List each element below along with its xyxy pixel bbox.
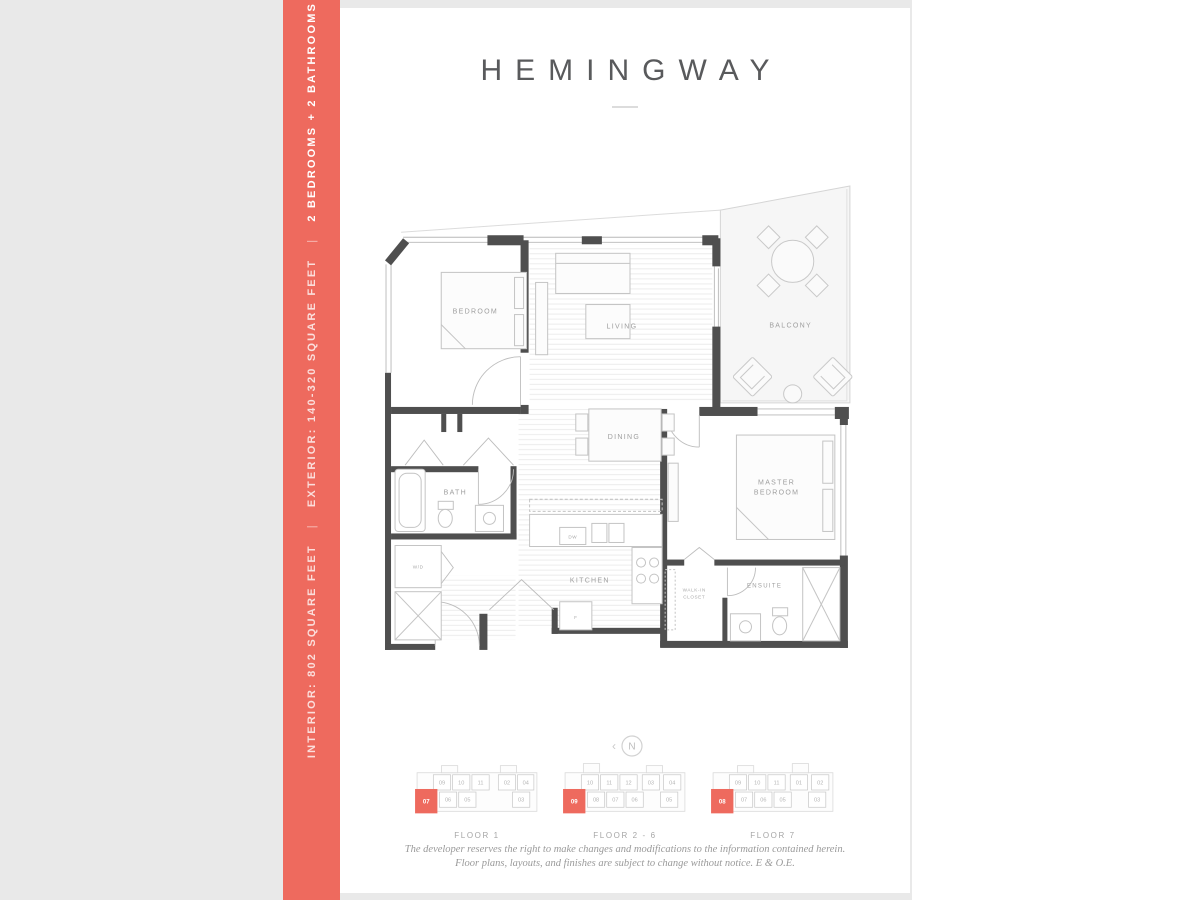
kitchen-label: KITCHEN [570, 578, 610, 585]
ensuite-label: ENSUITE [747, 584, 782, 590]
walkin-closet-label-2: CLOSET [683, 595, 705, 600]
svg-text:03: 03 [648, 780, 654, 786]
svg-text:07: 07 [741, 798, 747, 804]
keyplan-floor-1-label: FLOOR 1 [411, 831, 543, 840]
page-title: HEMINGWAY [340, 54, 910, 88]
svg-text:07: 07 [423, 799, 430, 806]
fridge-label: F [574, 615, 577, 620]
disclaimer: The developer reserves the right to make… [340, 843, 910, 871]
living-label: LIVING [607, 324, 638, 331]
svg-text:03: 03 [814, 798, 820, 804]
svg-text:05: 05 [666, 798, 672, 804]
svg-text:08: 08 [593, 798, 599, 804]
svg-text:09: 09 [735, 780, 741, 786]
compass: ‹ N [340, 732, 910, 760]
svg-text:02: 02 [817, 780, 823, 786]
separator: | [306, 222, 318, 259]
title-divider [612, 106, 638, 108]
svg-text:09: 09 [439, 780, 445, 786]
svg-text:02: 02 [504, 780, 510, 786]
separator: | [306, 507, 318, 544]
balcony-label: BALCONY [769, 323, 812, 330]
svg-text:10: 10 [587, 780, 593, 786]
keyplan-floor-2-6: 10 11 12 03 04 08 07 06 05 09 FLOOR 2 - … [559, 758, 691, 840]
svg-text:10: 10 [754, 780, 760, 786]
svg-text:04: 04 [523, 780, 529, 786]
dishwasher-label: DW [568, 534, 577, 539]
svg-text:04: 04 [669, 780, 675, 786]
bed-bath-label: 2 BEDROOMS + 2 BATHROOMS [306, 2, 318, 222]
floor-plan: BEDROOM LIVING BALCONY DINING BATH W/D K… [383, 176, 875, 668]
exterior-sqft-label: EXTERIOR: 140-320 SQUARE FEET [306, 259, 318, 507]
svg-text:06: 06 [632, 798, 638, 804]
brochure-page: HEMINGWAY [283, 8, 910, 893]
north-arrow-icon: ‹ N [590, 732, 660, 760]
keyplan-floor-1: 09 10 11 02 04 06 05 03 07 FLOOR 1 [411, 758, 543, 840]
svg-text:11: 11 [774, 780, 780, 786]
interior-sqft-label: INTERIOR: 802 SQUARE FEET [306, 544, 318, 758]
svg-text:01: 01 [796, 780, 802, 786]
svg-text:12: 12 [625, 780, 631, 786]
bath-label: BATH [444, 489, 467, 496]
entry-floor [441, 576, 515, 640]
walkin-closet-label-1: WALK-IN [683, 588, 706, 593]
svg-text:06: 06 [445, 798, 451, 804]
bedroom-label: BEDROOM [453, 309, 498, 316]
master-bedroom-label-1: MASTER [758, 479, 795, 486]
svg-text:11: 11 [478, 780, 484, 786]
keyplan-floor-2-6-label: FLOOR 2 - 6 [559, 831, 691, 840]
svg-text:11: 11 [606, 780, 612, 786]
svg-text:05: 05 [464, 798, 470, 804]
disclaimer-line-2: Floor plans, layouts, and finishes are s… [340, 857, 910, 871]
svg-text:06: 06 [760, 798, 766, 804]
svg-text:10: 10 [458, 780, 464, 786]
master-bedroom-label-2: BEDROOM [754, 489, 799, 496]
svg-text:08: 08 [719, 799, 726, 806]
svg-text:07: 07 [612, 798, 618, 804]
keyplan-floor-7-label: FLOOR 7 [707, 831, 839, 840]
svg-text:N: N [628, 742, 635, 753]
dining-label: DINING [608, 434, 640, 441]
svg-text:05: 05 [780, 798, 786, 804]
unit-stats-vertical-text: INTERIOR: 802 SQUARE FEET|EXTERIOR: 140-… [306, 2, 318, 758]
svg-text:03: 03 [518, 798, 524, 804]
svg-text:‹: ‹ [612, 739, 616, 753]
keyplan-floor-7: 09 10 11 01 02 07 06 05 03 08 FLOOR 7 [707, 758, 839, 840]
svg-text:09: 09 [571, 799, 578, 806]
key-plans: 09 10 11 02 04 06 05 03 07 FLOOR 1 [340, 758, 910, 840]
floor-plan-drawing: BEDROOM LIVING BALCONY DINING BATH W/D K… [383, 176, 875, 668]
accent-stripe: INTERIOR: 802 SQUARE FEET|EXTERIOR: 140-… [283, 0, 340, 900]
washer-dryer-label: W/D [413, 565, 424, 570]
disclaimer-line-1: The developer reserves the right to make… [340, 843, 910, 857]
